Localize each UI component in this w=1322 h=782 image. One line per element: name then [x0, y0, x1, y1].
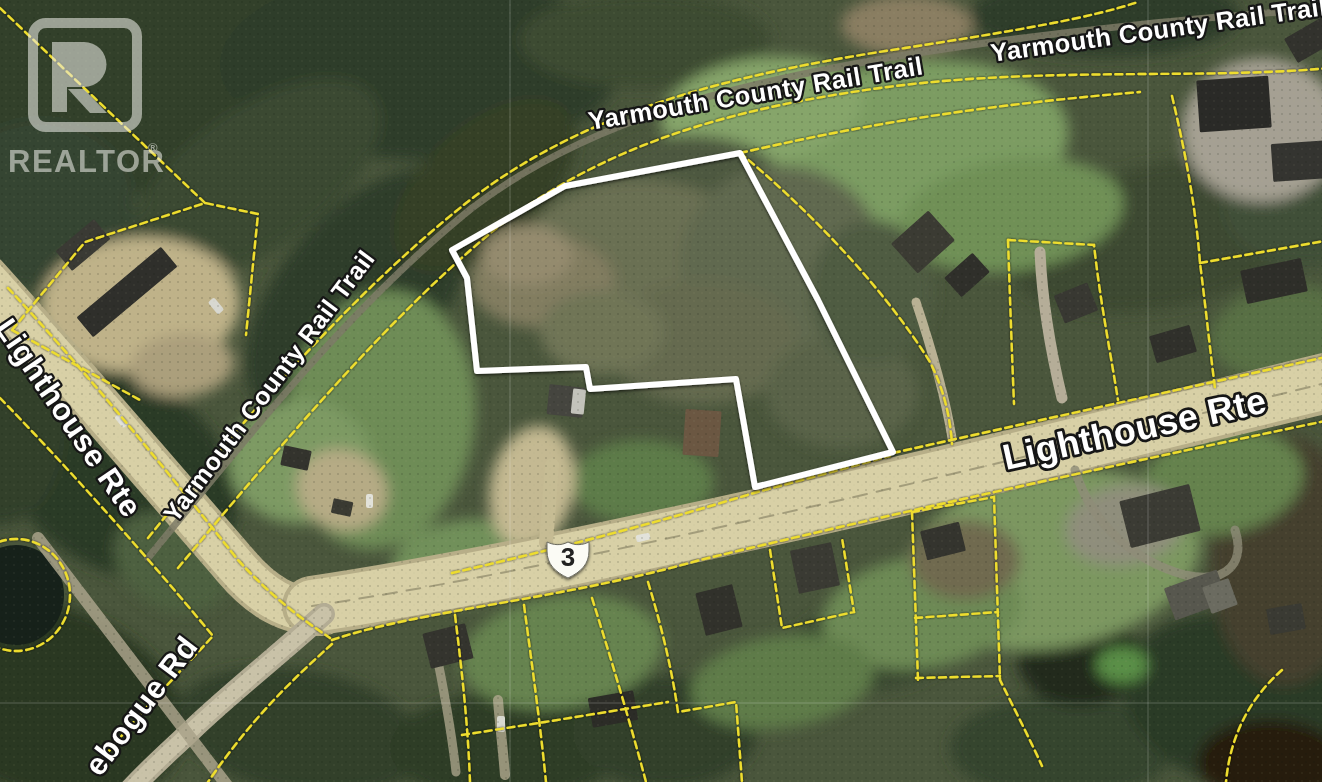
satellite-map: 3 Yarmouth County Rail Trail Yarmouth Co…: [0, 0, 1322, 782]
registered-mark: ®: [148, 140, 158, 155]
realtor-watermark: REALTOR ®: [8, 23, 165, 179]
realtor-wordmark: REALTOR: [8, 144, 165, 179]
route-number: 3: [561, 542, 575, 572]
map-canvas: 3 Yarmouth County Rail Trail Yarmouth Co…: [0, 0, 1322, 782]
